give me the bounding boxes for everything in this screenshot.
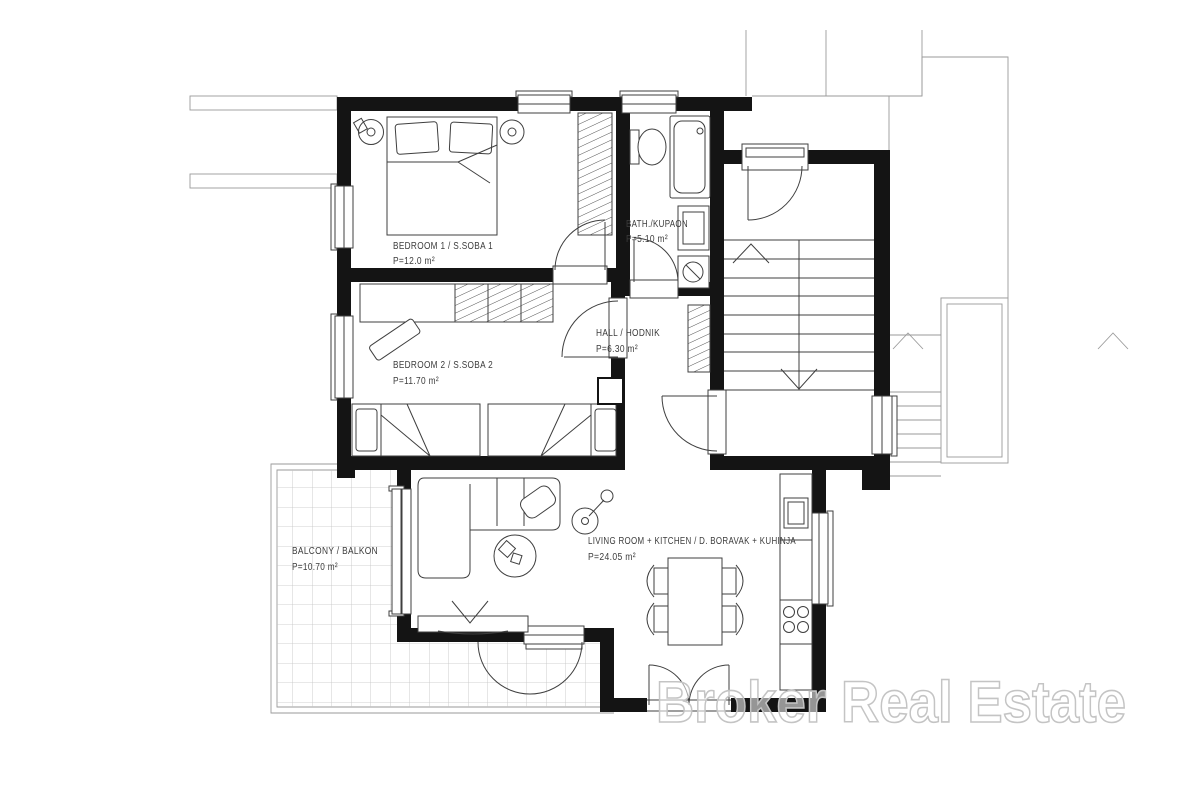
window-bedroom2-left xyxy=(331,314,353,400)
slope-chevron xyxy=(1098,333,1128,349)
staircase xyxy=(724,240,874,390)
stairs-up-arrow xyxy=(733,244,769,263)
label-bedroom2-name: BEDROOM 2 / S.SOBA 2 xyxy=(393,360,493,371)
porch-outline xyxy=(941,298,1008,463)
single-bed xyxy=(488,404,616,456)
party-wall-outline xyxy=(190,174,337,188)
single-bed xyxy=(352,404,480,456)
furniture-bedroom1 xyxy=(354,113,612,235)
tv-cabinet xyxy=(418,616,528,632)
window-stairwell xyxy=(872,396,897,456)
label-balcony-area: P=10.70 m² xyxy=(292,562,338,573)
party-wall-outline xyxy=(190,96,337,110)
window-living-bottom xyxy=(524,626,584,649)
watermark-text: Broker Real Estate xyxy=(656,670,1126,735)
exterior-steps xyxy=(890,392,941,476)
label-bath-area: P=5.10 m² xyxy=(626,234,668,245)
label-bath-name: BATH./KUPAON xyxy=(626,219,688,230)
floor-plan-canvas: BEDROOM 1 / S.SOBA 1 P=12.0 m² BEDROOM 2… xyxy=(0,0,1200,800)
window-kitchen-east xyxy=(810,511,833,606)
label-bedroom2-area: P=11.70 m² xyxy=(393,376,439,387)
bedside-lamp xyxy=(500,120,524,144)
label-hall-area: P=6.30 m² xyxy=(596,344,638,355)
label-balcony-name: BALCONY / BALKON xyxy=(292,546,378,557)
floor-plan-page: BEDROOM 1 / S.SOBA 1 P=12.0 m² BEDROOM 2… xyxy=(0,0,1200,800)
window-bedroom1-left xyxy=(331,184,353,250)
window-bath-top xyxy=(620,91,678,113)
floor-lamp xyxy=(572,508,598,534)
label-hall-name: HALL / HODNIK xyxy=(596,328,660,339)
shaft xyxy=(598,378,623,404)
bathtub xyxy=(670,116,710,198)
label-living-name: LIVING ROOM + KITCHEN / D. BORAVAK + KUH… xyxy=(588,536,796,547)
label-bedroom1-name: BEDROOM 1 / S.SOBA 1 xyxy=(393,241,493,252)
furniture-bath xyxy=(630,116,710,288)
round-rug xyxy=(494,535,536,577)
dining-table xyxy=(668,558,722,645)
wardrobe xyxy=(578,113,612,235)
double-bed xyxy=(387,117,497,235)
door-stair-landing xyxy=(742,144,808,220)
desk xyxy=(360,284,455,322)
door-bath xyxy=(630,238,678,298)
kitchen-counter xyxy=(780,474,812,690)
desk-chair xyxy=(368,318,421,361)
window-bedroom1-top xyxy=(516,91,572,113)
terrace-tiles-top-right xyxy=(889,57,1008,335)
label-bedroom1-area: P=12.0 m² xyxy=(393,256,435,267)
door-entrance-hall xyxy=(662,390,726,454)
balcony-sliding-door xyxy=(389,486,411,616)
wardrobe xyxy=(455,284,553,322)
hall-closet xyxy=(688,305,710,372)
label-living-area: P=24.05 m² xyxy=(588,552,636,563)
